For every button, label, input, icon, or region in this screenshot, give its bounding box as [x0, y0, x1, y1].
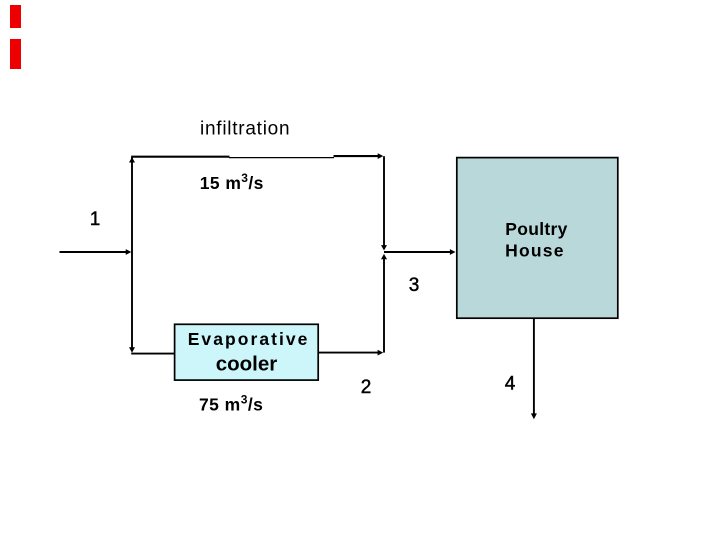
svg-text:4: 4: [505, 373, 516, 394]
svg-text:15 m3/s: 15 m3/s: [200, 171, 264, 193]
svg-text:cooler: cooler: [216, 353, 278, 376]
svg-text:3: 3: [409, 275, 420, 296]
svg-text:1: 1: [90, 209, 101, 230]
svg-text:75 m3/s: 75 m3/s: [199, 393, 263, 415]
svg-text:House: House: [505, 240, 564, 260]
svg-text:infiltration: infiltration: [200, 119, 290, 140]
svg-text:Poultry: Poultry: [505, 219, 567, 239]
svg-text:2: 2: [361, 377, 372, 398]
svg-text:Evaporative: Evaporative: [188, 329, 310, 349]
